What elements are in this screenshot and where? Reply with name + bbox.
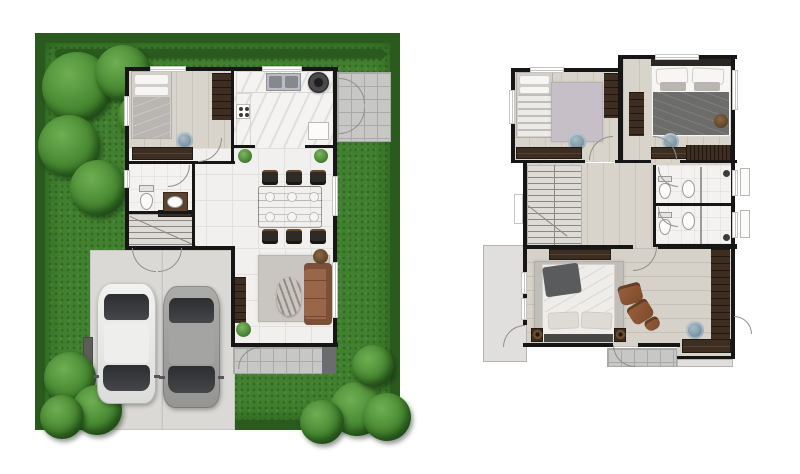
dresser [132,147,193,160]
wall [658,245,737,249]
stair-diagonal [527,205,567,237]
pillow [519,86,550,94]
balcony-rear-ext [677,359,733,367]
plate [265,192,275,202]
shrub-icon [40,395,84,439]
toilet-tank [139,185,154,192]
potted-plant-icon [236,322,251,337]
ac-unit [740,168,750,196]
tv-cabinet [549,249,611,260]
plate [287,212,297,222]
coffee-table [277,277,301,316]
burner [245,113,249,117]
staircase [128,214,195,248]
sink-bowl [682,212,695,230]
car-windshield [103,365,150,391]
toilet [138,185,155,211]
cooktop [236,104,250,119]
car-roof [104,323,149,363]
wall [638,343,680,347]
door-swing [734,316,752,334]
pillow [134,74,169,85]
wall [653,165,656,247]
duvet [133,97,170,138]
wall [192,161,195,250]
cushion [660,82,686,91]
plate [265,212,275,222]
staircase [527,165,582,248]
floor-plan-rendering [0,0,800,474]
wall [231,343,338,347]
stair-diagonal [130,216,196,246]
car-mirror [159,376,165,379]
wardrobe [604,73,619,118]
potted-plant-icon [238,149,252,163]
burner [245,107,249,111]
shower-head-icon [723,234,730,241]
window [509,90,515,124]
vanity-sink [163,192,188,213]
single-bed [131,71,172,139]
dining-chair [310,170,326,185]
dining-chair [286,229,302,244]
shrub-icon [300,400,344,444]
sink-bowl [682,180,695,198]
plate [309,192,319,202]
dining-chair [286,170,302,185]
window [150,66,186,72]
window [332,262,338,318]
wall [305,145,335,148]
toilet-bowl [140,193,153,210]
wall [621,160,651,163]
wall [125,67,129,250]
wall [523,343,613,347]
wall [731,247,735,359]
wall [125,211,195,214]
tree-icon [70,160,126,216]
burner [239,107,243,111]
plate [309,212,319,222]
shrub-icon [352,345,394,387]
plate [287,192,297,202]
round-side-table [714,114,728,128]
throw-blanket [542,263,582,298]
bay-window [514,194,523,224]
kitchen-counter [236,93,251,146]
dining-chair [310,229,326,244]
wall [523,245,633,249]
side-table [313,249,328,264]
striped-duvet [518,94,551,136]
round-cooktop [308,72,329,93]
refrigerator [308,122,329,140]
pillow [548,311,580,330]
car-windshield [168,366,215,393]
window [332,176,338,216]
sink-basin [285,76,298,88]
lamp-icon [615,329,626,340]
window [530,67,564,73]
pillow [519,75,550,85]
wardrobe [629,92,644,136]
wall [231,67,234,164]
slatted-closet [686,145,731,161]
burner [239,113,243,117]
wall [233,145,255,148]
dining-chair [262,170,278,185]
wall [231,246,235,347]
ac-unit [740,210,750,238]
walk-in-closet [711,249,730,339]
shower-glass [700,206,702,244]
window [732,212,738,238]
window [124,170,130,188]
pillow [134,86,169,96]
sofa [304,263,332,325]
wardrobe [212,73,231,120]
sink-basin [269,76,282,88]
pillow [581,311,613,330]
potted-plant-icon [314,149,328,163]
pedestal-sink [681,210,696,232]
pouf [686,321,704,339]
stair-divider [554,165,555,248]
pedestal-sink [681,178,696,200]
wall [523,163,527,248]
car-mirror [218,376,224,379]
sink-bowl [167,196,183,208]
window [732,70,738,110]
wall [680,160,737,163]
kitchen-sink [266,73,301,91]
car-rear-window [104,294,149,320]
wall [125,161,235,164]
wall [618,55,623,163]
single-bed [516,72,553,138]
wall [511,68,622,72]
foot-bench [544,334,613,342]
window [521,272,527,294]
window [124,96,130,126]
first-floor-plan [0,0,420,474]
window [521,298,527,320]
shower-head-icon [723,170,730,177]
second-floor-plan [420,0,800,474]
wall [653,203,733,206]
dining-chair [262,229,278,244]
dresser [516,147,582,159]
double-bed [542,264,615,343]
window [655,54,699,60]
car-roof [169,326,214,364]
shrub-icon [363,393,411,441]
window [732,170,738,196]
wall [677,356,735,359]
cushion [694,82,720,91]
gray-car [163,286,220,408]
car-rear-window [169,298,214,323]
white-car [97,283,156,404]
dresser [682,339,731,353]
shower-glass [700,167,702,203]
car-mirror [93,375,99,378]
window [262,66,302,72]
headboard [651,59,731,66]
terrace-dark-strip [322,347,336,374]
lamp-icon [532,329,543,340]
